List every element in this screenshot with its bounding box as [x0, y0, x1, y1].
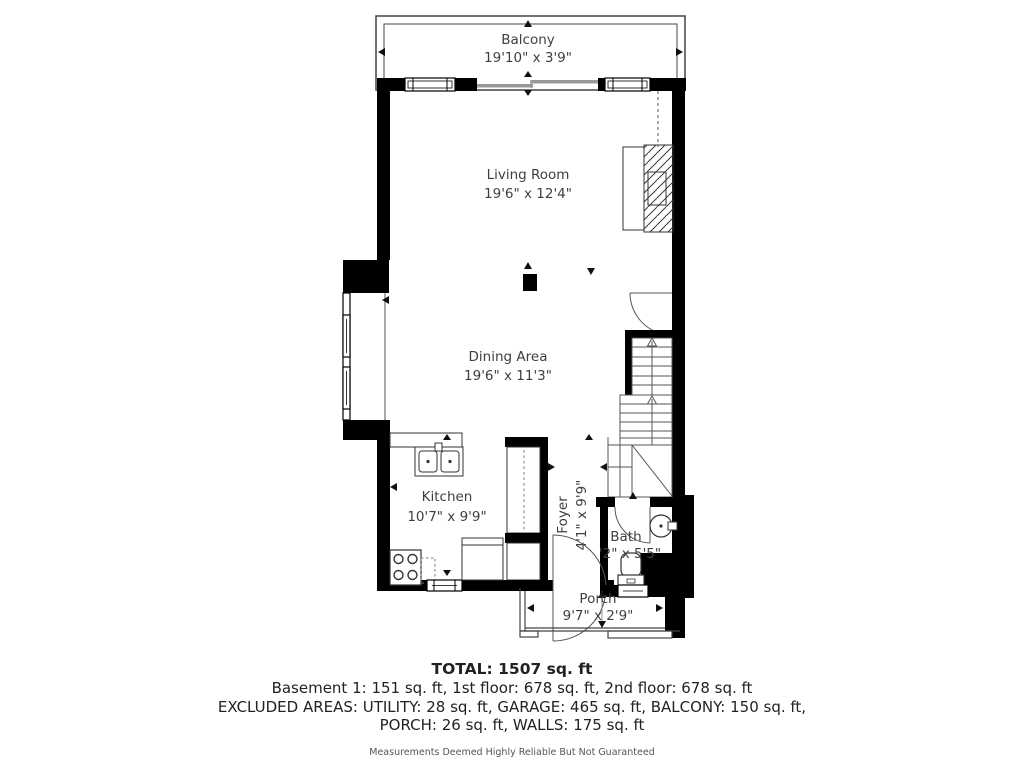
window	[618, 585, 648, 597]
dimension-arrow	[524, 262, 532, 269]
excluded-areas-line2: PORCH: 26 sq. ft, WALLS: 175 sq. ft	[0, 716, 1024, 735]
staircase	[596, 293, 672, 507]
kitchen-counter	[390, 433, 462, 447]
fireplace	[623, 145, 673, 232]
dishwasher-dashed	[421, 558, 435, 583]
dining-area-dims: 19'6" x 11'3"	[464, 368, 552, 384]
dimension-arrow	[527, 604, 534, 612]
stove	[390, 550, 421, 585]
dimension-arrow	[587, 268, 595, 275]
floor-plan-page: Balcony 19'10" x 3'9"	[0, 0, 1024, 768]
living-room-label: Living Room	[487, 167, 570, 183]
balcony-dims: 19'10" x 3'9"	[484, 50, 572, 66]
dimension-arrow	[600, 463, 607, 471]
bay-wall	[343, 293, 389, 420]
total-area: TOTAL: 1507 sq. ft	[0, 660, 1024, 679]
pantry-closet	[505, 437, 553, 591]
floor-plan-drawing: Balcony 19'10" x 3'9"	[0, 0, 1024, 660]
sliding-door	[477, 71, 598, 96]
dimension-arrow	[390, 483, 397, 491]
kitchen-sink	[415, 443, 463, 476]
foyer-label: Foyer	[555, 496, 571, 534]
dimension-arrow	[443, 570, 451, 576]
dimension-arrow	[656, 604, 663, 612]
window	[343, 315, 350, 357]
dimension-arrow	[378, 48, 385, 56]
window	[405, 78, 455, 91]
dimension-arrow	[548, 463, 555, 471]
bath-dims: '2" x 5'5"	[599, 546, 661, 562]
kitchen-label: Kitchen	[422, 489, 473, 505]
floor-areas-line: Basement 1: 151 sq. ft, 1st floor: 678 s…	[0, 679, 1024, 698]
balcony-label: Balcony	[501, 32, 555, 48]
porch-dims: 9'7" x 2'9"	[563, 608, 634, 624]
dimension-arrow	[524, 71, 532, 77]
support-column	[523, 274, 537, 291]
excluded-areas-line: EXCLUDED AREAS: UTILITY: 28 sq. ft, GARA…	[0, 698, 1024, 717]
dimension-arrow	[676, 48, 683, 56]
dimension-arrow	[524, 90, 532, 96]
disclaimer-text: Measurements Deemed Highly Reliable But …	[0, 747, 1024, 758]
window	[605, 78, 650, 91]
bath-label: Bath	[610, 529, 641, 545]
refrigerator	[462, 538, 503, 580]
window	[427, 580, 462, 591]
kitchen-dims: 10'7" x 9'9"	[407, 509, 486, 525]
area-summary: TOTAL: 1507 sq. ft Basement 1: 151 sq. f…	[0, 660, 1024, 758]
dining-area-label: Dining Area	[469, 349, 548, 365]
porch-label: Porch	[579, 591, 616, 607]
window	[343, 367, 350, 409]
dimension-arrow	[585, 434, 593, 440]
living-room-dims: 19'6" x 12'4"	[484, 186, 572, 202]
